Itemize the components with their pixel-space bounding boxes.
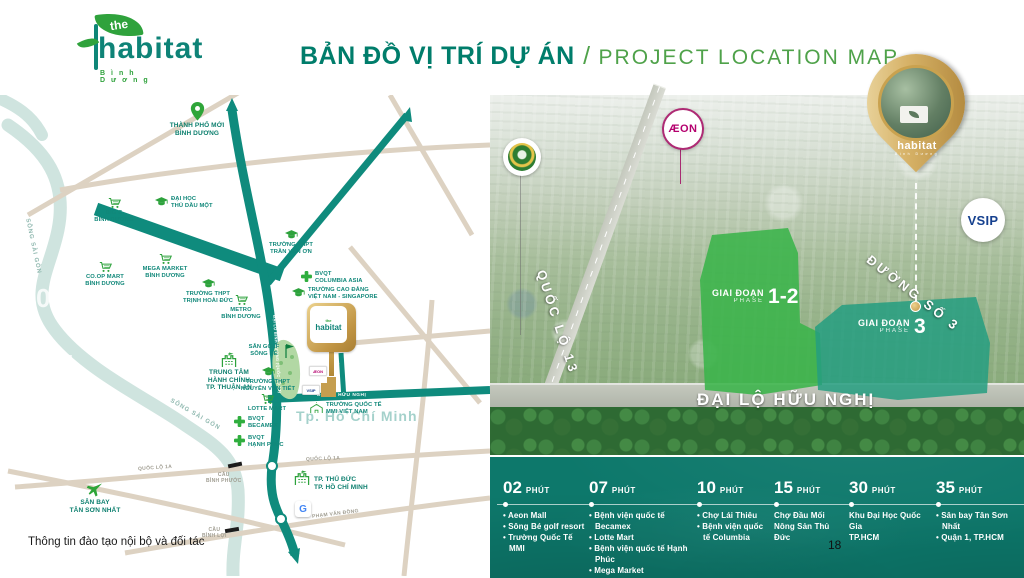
poi-label: CO.OP MART BÌNH DƯƠNG — [85, 274, 124, 288]
poi-list: Sân bay Tân Sơn Nhất Quận 1, TP.HCM — [936, 510, 1022, 543]
list-item: Bệnh viện quốc tế Becamex — [589, 510, 695, 532]
poi-cao-dang-vn-singapore: TRƯỜNG CAO ĐẲNG VIỆT NAM - SINGAPORE — [292, 287, 378, 301]
poi-thpt-tran-van-on: TRƯỜNG THPT TRẦN VĂN ƠN — [259, 229, 323, 256]
habitat-project-sign: the habitat — [307, 303, 356, 352]
time-value: 02 — [503, 478, 522, 498]
time-column-02: 02 PHÚT Aeon Mall Sông Bé golf resort Tr… — [503, 478, 587, 554]
title-english: PROJECT LOCATION MAP — [599, 46, 900, 69]
time-unit: PHÚT — [797, 486, 821, 495]
list-item: Khu Đại Học Quốc Gia — [849, 510, 934, 532]
vsip-map-badge: VSIP — [302, 385, 320, 395]
poi-label: BVQT COLUMBIA ASIA — [315, 271, 363, 285]
title-separator: / — [583, 42, 590, 70]
vsip-logo: VSIP — [961, 198, 1005, 242]
list-item: TP.HCM — [849, 532, 934, 543]
title-vietnamese: BẢN ĐỒ VỊ TRÍ DỰ ÁN — [300, 42, 575, 70]
time-unit: PHÚT — [612, 486, 636, 495]
poi-thanh-pho-moi: THÀNH PHỐ MỚI BÌNH DƯƠNG — [165, 102, 229, 137]
phase-en-label: PHASE — [880, 328, 910, 334]
time-column-10: 10 PHÚT Chợ Lái Thiêu Bệnh viện quốc tế … — [697, 478, 771, 543]
time-unit: PHÚT — [720, 486, 744, 495]
cart-icon — [159, 253, 172, 265]
time-value: 10 — [697, 478, 716, 498]
graduation-cap-icon — [155, 196, 168, 208]
poi-lotte-mart: LOTTE MART — [235, 393, 299, 413]
poi-list: Khu Đại Học Quốc Gia TP.HCM — [849, 510, 934, 543]
habitat-pin-subtitle: Bình Dương — [884, 152, 950, 156]
medical-cross-icon — [234, 416, 245, 427]
poi-list: Chợ Lái Thiêu Bệnh viện quốc tế Columbia — [697, 510, 771, 543]
list-item: Lotte Mart — [589, 532, 695, 543]
time-heading: 02 PHÚT — [503, 478, 587, 498]
building-icon — [293, 470, 311, 486]
cart-icon — [108, 197, 121, 209]
time-heading: 30 PHÚT — [849, 478, 934, 498]
time-column-15: 15 PHÚT Chợ Đầu Mối Nông Sản Thủ Đức — [774, 478, 846, 543]
poi-san-bay-tan-son-nhat: SÂN BAY TÂN SƠN NHẤT — [63, 482, 127, 514]
graduation-cap-icon — [292, 287, 305, 299]
time-value: 15 — [774, 478, 793, 498]
cart-icon — [235, 294, 248, 306]
poi-label: ĐẠI HỌC THỦ DẦU MỘT — [171, 196, 213, 210]
time-heading: 35 PHÚT — [936, 478, 1022, 498]
poi-metro: METRO BÌNH DƯƠNG — [209, 294, 273, 321]
phase-3-text: GIAI ĐOẠN PHASE — [858, 319, 910, 334]
list-item: Chợ Đầu Mối — [774, 510, 846, 521]
poi-list: Aeon Mall Sông Bé golf resort Trường Quố… — [503, 510, 587, 554]
phase-en-label: PHASE — [734, 298, 764, 304]
watermark-07: 07 — [44, 349, 73, 380]
habitat-pin-wall-art — [900, 106, 928, 123]
time-heading: 10 PHÚT — [697, 478, 771, 498]
time-column-35: 35 PHÚT Sân bay Tân Sơn Nhất Quận 1, TP.… — [936, 478, 1022, 543]
list-item: Mega Market — [589, 565, 695, 576]
time-heading: 15 PHÚT — [774, 478, 846, 498]
time-value: 35 — [936, 478, 955, 498]
phase-3-label: GIAI ĐOẠN PHASE 3 — [858, 316, 926, 337]
poi-label: BIG C BÌNH DƯƠNG — [94, 210, 133, 224]
bridge-label-binh-phuoc: CẦU BÌNH PHƯỚC — [206, 472, 242, 484]
poi-label: LOTTE MART — [248, 406, 286, 413]
poi-label: TRƯỜNG THPT NGUYỄN VĂN TIẾT — [241, 379, 295, 393]
poi-label: TRƯỜNG THPT TRẦN VĂN ƠN — [269, 242, 313, 256]
phase-1-2-text: GIAI ĐOẠN PHASE — [712, 289, 764, 304]
aeon-map-badge: ÆON — [309, 366, 327, 376]
graduation-cap-icon — [202, 278, 215, 290]
graduation-cap-icon — [285, 229, 298, 241]
poi-bvqt-columbia: BVQT COLUMBIA ASIA — [301, 271, 363, 285]
watermark-02: 02 — [36, 283, 65, 314]
aeon-pointer-line — [680, 146, 681, 184]
poi-bvqt-becamex: BVQT BECAMEX — [234, 416, 278, 430]
poi-dai-hoc-thu-dau-mot: ĐẠI HỌC THỦ DẦU MỘT — [155, 196, 213, 210]
medical-cross-icon — [301, 271, 312, 282]
google-maps-icon: G — [295, 501, 311, 517]
time-value: 30 — [849, 478, 868, 498]
cart-icon — [99, 261, 112, 273]
list-item: Sông Bé golf resort — [503, 521, 587, 532]
poi-bvqt-hanh-phuc: BVQT HẠNH PHÚC — [234, 435, 284, 449]
poi-label: BVQT HẠNH PHÚC — [248, 435, 284, 449]
time-unit: PHÚT — [959, 486, 983, 495]
poi-label: TRƯỜNG QUỐC TẾ MMI VIỆT NAM — [326, 402, 382, 416]
footer-note: Thông tin đào tạo nội bộ và đối tác — [28, 536, 204, 548]
list-item: Trường Quốc Tế MMI — [503, 532, 587, 554]
aeon-logo: ÆON — [662, 108, 704, 150]
golf-logo-pointer-line — [520, 175, 521, 335]
logo-subtitle: Bình Dương — [100, 70, 188, 84]
poi-thpt-nguyen-van-tiet: TRƯỜNG THPT NGUYỄN VĂN TIẾT — [236, 366, 300, 393]
logo-name: habitat — [98, 32, 203, 66]
poi-tp-thu-duc: TP. THỦ ĐỨC TP. HỒ CHÍ MINH — [293, 470, 368, 491]
phase-1-2-area — [700, 228, 822, 395]
time-unit: PHÚT — [526, 486, 550, 495]
school-icon — [310, 402, 323, 414]
phase-3-area — [815, 297, 990, 400]
bridge-label-binh-loi: CẦU BÌNH LỢI — [202, 527, 227, 539]
poi-list: Bệnh viện quốc tế Becamex Lotte Mart Bện… — [589, 510, 695, 576]
cart-icon — [261, 393, 274, 405]
graduation-cap-icon — [262, 366, 275, 378]
poi-mega-market: MEGA MARKET BÌNH DƯƠNG — [133, 253, 197, 280]
leaf-art-icon — [909, 111, 919, 118]
list-item: Chợ Lái Thiêu — [697, 510, 771, 521]
poi-label: THÀNH PHỐ MỚI BÌNH DƯƠNG — [170, 122, 225, 137]
list-item: Quận 1, TP.HCM — [936, 532, 1022, 543]
list-item: Sân bay Tân Sơn Nhất — [936, 510, 1022, 532]
list-item: Bệnh viện quốc tế Hạnh Phúc — [589, 543, 695, 565]
location-pin-icon — [190, 102, 205, 121]
logo-the: the — [109, 17, 129, 33]
phase-vi-label: GIAI ĐOẠN — [858, 319, 910, 328]
phase-number: 1-2 — [768, 286, 798, 307]
habitat-pointer-dashed-line — [915, 183, 917, 301]
habitat-pin-name: habitat — [884, 140, 950, 152]
poi-label: SÂN BAY TÂN SƠN NHẤT — [70, 499, 121, 514]
photo-label-huu-nghi: ĐẠI LỘ HỮU NGHỊ — [697, 390, 875, 410]
time-column-07: 07 PHÚT Bệnh viện quốc tế Becamex Lotte … — [589, 478, 695, 576]
airplane-icon — [86, 482, 104, 498]
habitat-site-dot — [910, 301, 921, 312]
list-item: Aeon Mall — [503, 510, 587, 521]
poi-truong-quoc-te-mmi: TRƯỜNG QUỐC TẾ MMI VIỆT NAM — [310, 402, 382, 416]
golf-emblem — [508, 143, 536, 171]
phase-vi-label: GIAI ĐOẠN — [712, 289, 764, 298]
habitat-logo: the habitat Bình Dương — [38, 10, 188, 90]
page-number: 18 — [828, 538, 841, 552]
phase-number: 3 — [914, 316, 926, 337]
medical-cross-icon — [234, 435, 245, 446]
poi-label: METRO BÌNH DƯƠNG — [221, 307, 260, 321]
time-value: 07 — [589, 478, 608, 498]
song-be-golf-logo — [503, 138, 541, 176]
habitat-sign-card: the habitat — [310, 306, 347, 343]
poi-coop-mart: CO.OP MART BÌNH DƯƠNG — [73, 261, 137, 288]
road-label-ql1a-right: QUỐC LỘ 1A — [306, 455, 340, 462]
poi-label: BVQT BECAMEX — [248, 416, 278, 430]
list-item: Bệnh viện quốc tế Columbia — [697, 521, 771, 543]
phase-1-2-label: GIAI ĐOẠN PHASE 1-2 — [712, 286, 798, 307]
time-heading: 07 PHÚT — [589, 478, 695, 498]
time-unit: PHÚT — [872, 486, 896, 495]
habitat-pin-photo — [878, 65, 954, 141]
poi-label: TP. THỦ ĐỨC TP. HỒ CHÍ MINH — [314, 476, 368, 491]
page-title: BẢN ĐỒ VỊ TRÍ DỰ ÁN / PROJECT LOCATION M… — [300, 42, 899, 71]
poi-label: TRƯỜNG CAO ĐẲNG VIỆT NAM - SINGAPORE — [308, 287, 378, 301]
habitat-pin-logo: habitat Bình Dương — [884, 140, 950, 156]
poi-big-c: BIG C BÌNH DƯƠNG — [82, 197, 146, 224]
habitat-sign-name: habitat — [315, 323, 341, 332]
time-column-30: 30 PHÚT Khu Đại Học Quốc Gia TP.HCM — [849, 478, 934, 543]
